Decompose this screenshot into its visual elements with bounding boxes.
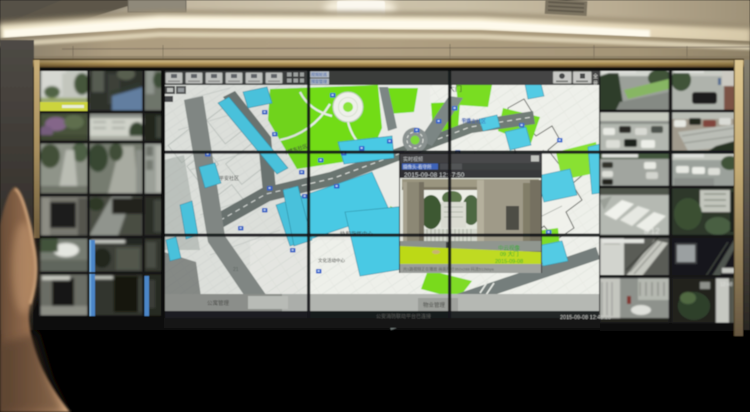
- svg-text:文化活动中心: 文化活动中心: [318, 257, 345, 264]
- svg-text:8:12: 8:12: [644, 227, 660, 236]
- svg-text:2015-09-08 12:48:28: 2015-09-08 12:48:28: [560, 315, 611, 321]
- svg-text:公安消防联动平台已连接: 公安消防联动平台已连接: [376, 313, 431, 320]
- svg-text:12:48: 12:48: [720, 282, 733, 288]
- svg-text:预案管理: 预案管理: [311, 78, 327, 84]
- svg-text:实时视频: 实时视频: [403, 156, 423, 163]
- svg-text:视频轮巡: 视频轮巡: [311, 71, 327, 77]
- svg-text:摄像头-看守所: 摄像头-看守所: [403, 164, 432, 171]
- svg-text:物业管理: 物业管理: [423, 301, 446, 309]
